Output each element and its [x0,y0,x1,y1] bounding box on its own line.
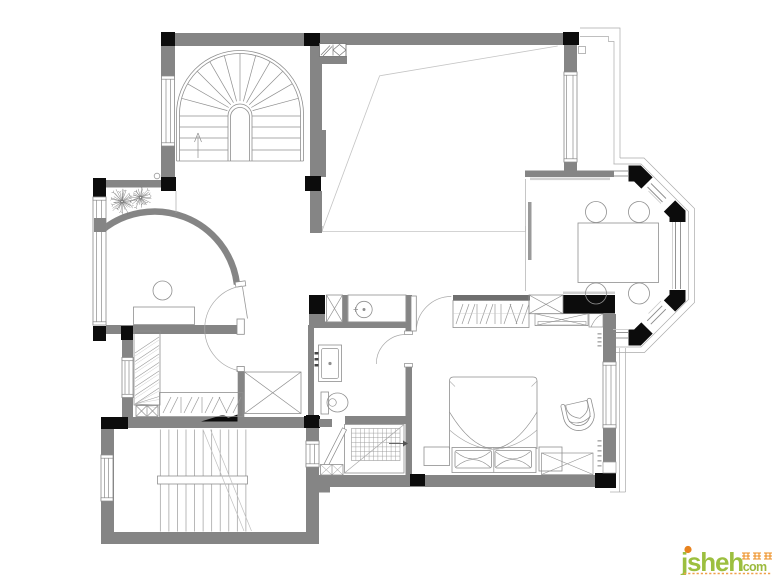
svg-text:.com: .com [740,560,767,574]
